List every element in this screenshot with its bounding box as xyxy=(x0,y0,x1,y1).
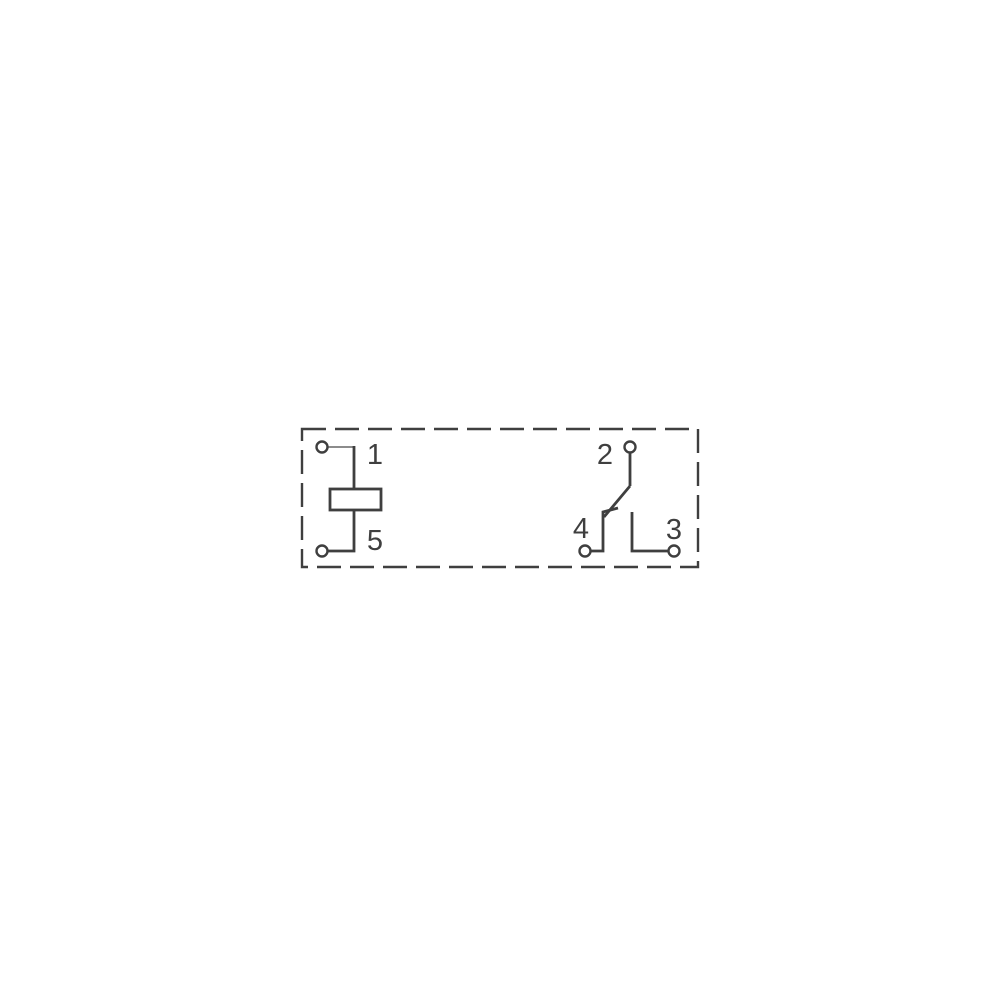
pin-1-label: 1 xyxy=(367,439,383,471)
pin-3-terminal xyxy=(669,546,680,557)
pin-2-label: 2 xyxy=(597,439,613,471)
pin-5-label: 5 xyxy=(367,525,383,557)
moving-contact-arm xyxy=(604,486,630,517)
coil xyxy=(330,489,381,510)
contact-circuit: 2 4 3 xyxy=(573,439,682,557)
pin-1-terminal xyxy=(317,442,328,453)
relay-schematic: 1 5 2 4 3 xyxy=(0,0,1000,1000)
schematic-page: 1 5 2 4 3 xyxy=(0,0,1000,1000)
pin-2-terminal xyxy=(625,442,636,453)
pin-4-label: 4 xyxy=(573,513,589,545)
coil-bottom-wire xyxy=(328,510,354,551)
pin-3-label: 3 xyxy=(666,514,682,546)
pin-5-terminal xyxy=(317,546,328,557)
pin-4-terminal xyxy=(580,546,591,557)
coil-circuit: 1 5 xyxy=(317,439,384,557)
no-contact-wire xyxy=(632,512,668,551)
